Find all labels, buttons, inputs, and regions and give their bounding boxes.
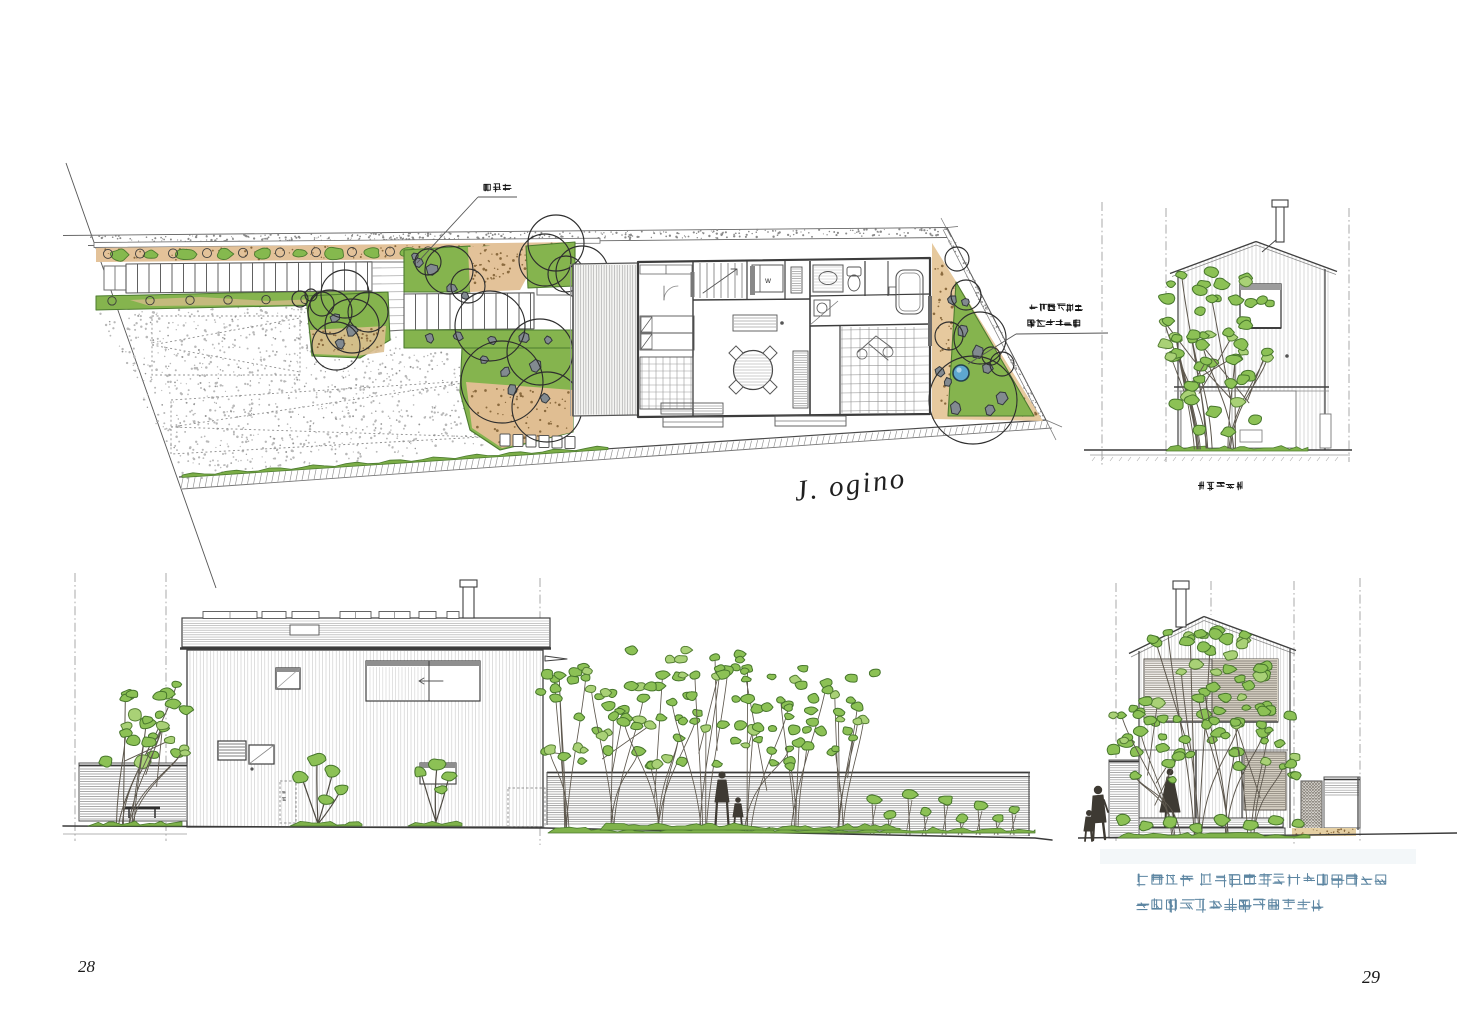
svg-text:w: w <box>764 276 771 285</box>
svg-text:29: 29 <box>1362 967 1380 987</box>
svg-text:28: 28 <box>78 957 96 976</box>
